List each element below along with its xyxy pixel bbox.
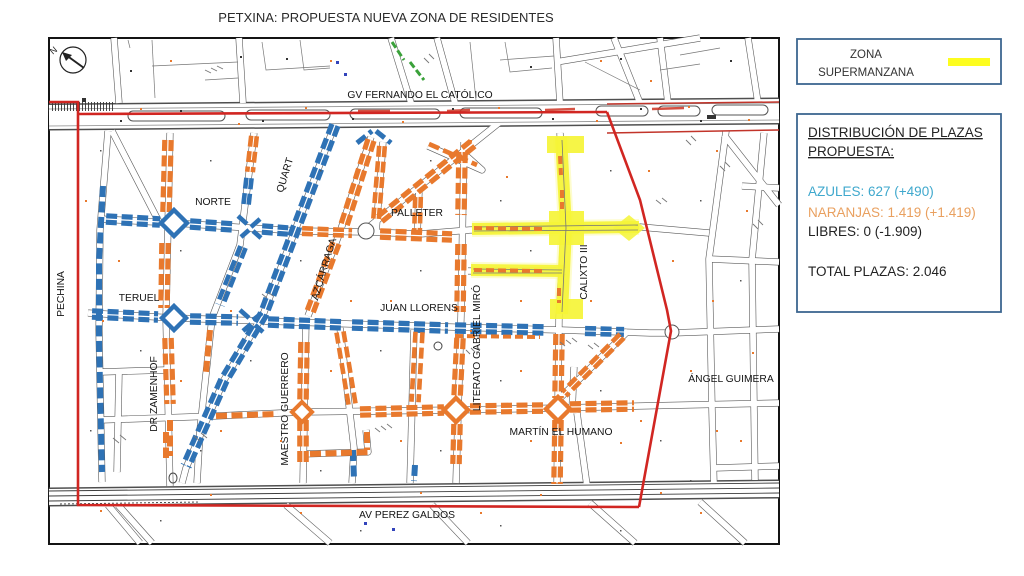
svg-text:LIBRES: 0 (-1.909): LIBRES: 0 (-1.909) <box>808 224 922 239</box>
svg-text:PETXINA: PROPUESTA NUEVA ZONA: PETXINA: PROPUESTA NUEVA ZONA DE RESIDEN… <box>218 10 554 25</box>
svg-text:PECHINA: PECHINA <box>56 271 67 317</box>
svg-text:DR ZAMENHOF: DR ZAMENHOF <box>149 356 160 432</box>
svg-text:MAESTRO GUERRERO: MAESTRO GUERRERO <box>280 352 291 465</box>
svg-text:LITERATO GABRIEL MIRÓ: LITERATO GABRIEL MIRÓ <box>470 285 483 411</box>
svg-text:SUPERMANZANA: SUPERMANZANA <box>818 67 914 79</box>
svg-text:AZULES: 627 (+490): AZULES: 627 (+490) <box>808 184 934 199</box>
svg-text:TERUEL: TERUEL <box>119 293 160 304</box>
svg-text:CALIXTO III: CALIXTO III <box>579 244 590 299</box>
svg-text:TOTAL PLAZAS: 2.046: TOTAL PLAZAS: 2.046 <box>808 264 947 279</box>
svg-text:NORTE: NORTE <box>195 197 231 208</box>
svg-text:MARTÍN EL HUMANO: MARTÍN EL HUMANO <box>510 425 613 438</box>
svg-text:PALLETER: PALLETER <box>391 208 443 219</box>
svg-text:JUAN LLORENS: JUAN LLORENS <box>380 303 458 314</box>
svg-text:NARANJAS: 1.419 (+1.419): NARANJAS: 1.419 (+1.419) <box>808 205 976 220</box>
svg-text:DISTRIBUCIÓN DE PLAZAS: DISTRIBUCIÓN DE PLAZAS <box>808 125 983 140</box>
svg-text:AV PEREZ GALDOS: AV PEREZ GALDOS <box>359 510 455 521</box>
svg-text:GV FERNANDO EL CATÓLICO: GV FERNANDO EL CATÓLICO <box>347 88 492 101</box>
svg-text:ZONA: ZONA <box>850 49 882 61</box>
svg-text:PROPUESTA:: PROPUESTA: <box>808 144 894 159</box>
svg-text:ÁNGEL GUIMERA: ÁNGEL GUIMERA <box>688 372 774 385</box>
